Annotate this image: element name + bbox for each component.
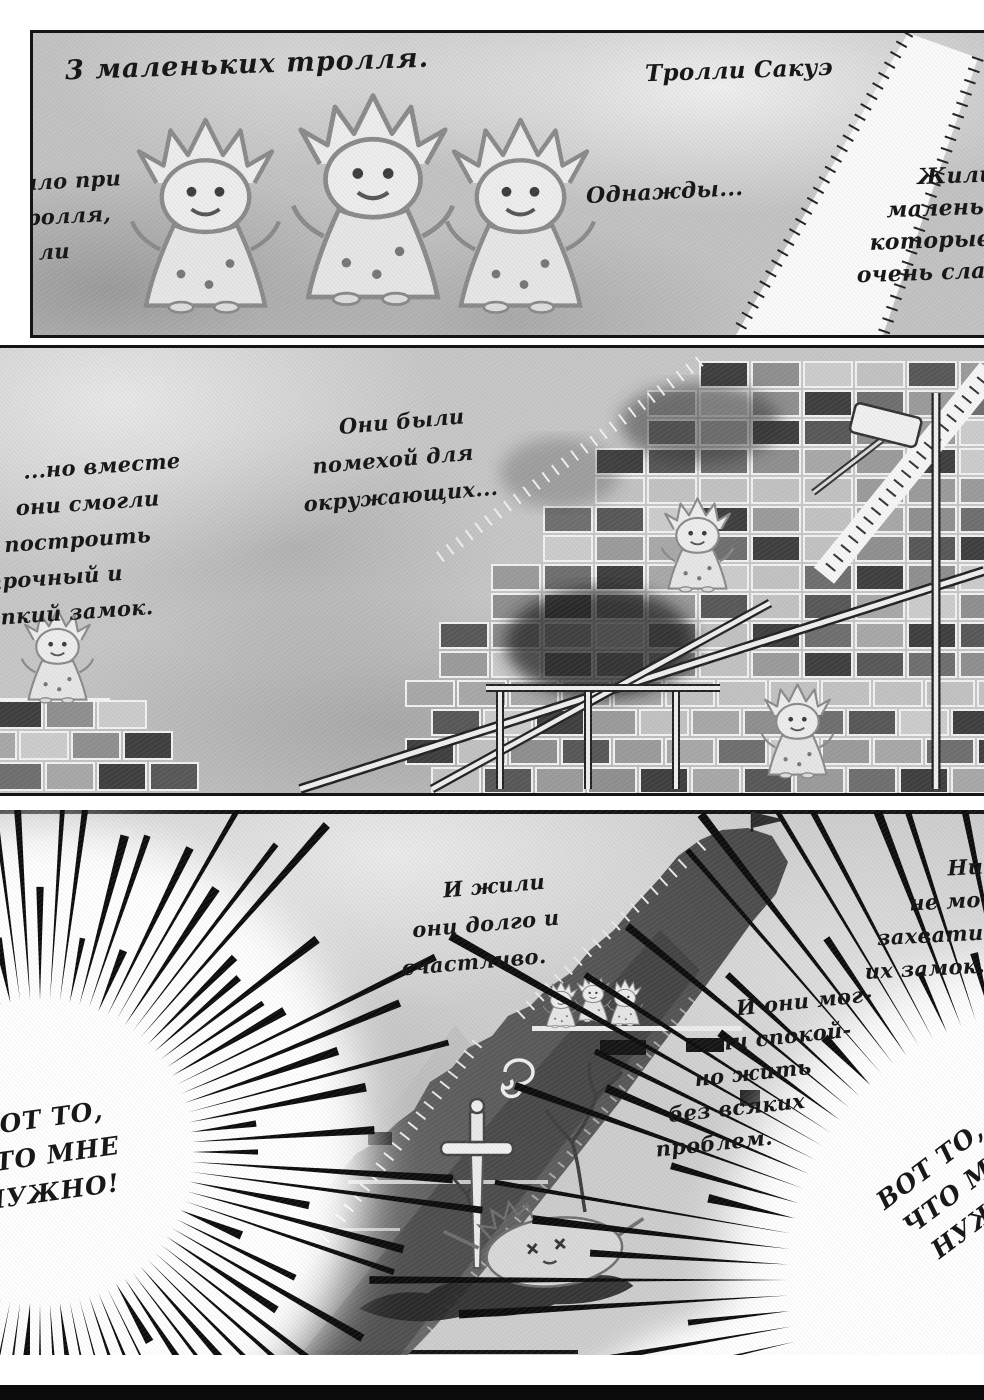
- wall-shadow: [620, 383, 780, 463]
- next-panel-edge: [0, 1385, 984, 1400]
- comic-panel-2: Они былипомехой дляокружающих... ...но в…: [0, 345, 984, 796]
- narration-left-fragment: было притролля,ли: [30, 160, 126, 275]
- comic-panel-1: 3 маленьких тролля. Тролли Сакуэ было пр…: [30, 30, 984, 338]
- comic-panel-3: И жилиони долго исчастливо. Никтоне могз…: [0, 810, 984, 1355]
- narration-castle: ...но вместеони смоглипостроитьпрочный и…: [0, 441, 221, 636]
- comic-page: 3 маленьких тролля. Тролли Сакуэ было пр…: [0, 0, 984, 1400]
- troll-figure: [293, 96, 453, 305]
- small-brick-wall: [0, 701, 198, 790]
- troll-figure: [132, 120, 279, 313]
- narration-nobody: Никтоне могзахватитьих замок.: [859, 844, 984, 988]
- narration-right-fragment: Жилималенькикоторые быочень слабыми: [847, 155, 984, 292]
- troll-figure: [447, 120, 594, 313]
- wall-shadow: [500, 438, 620, 508]
- narration-lived: И жилиони долго исчастливо.: [393, 861, 577, 987]
- wall-shadow: [505, 588, 695, 698]
- narration-hindrance: Они былипомехой дляокружающих...: [296, 394, 505, 522]
- narration-peace: И они мог-ли спокой-но житьбез всякихпро…: [640, 975, 906, 1165]
